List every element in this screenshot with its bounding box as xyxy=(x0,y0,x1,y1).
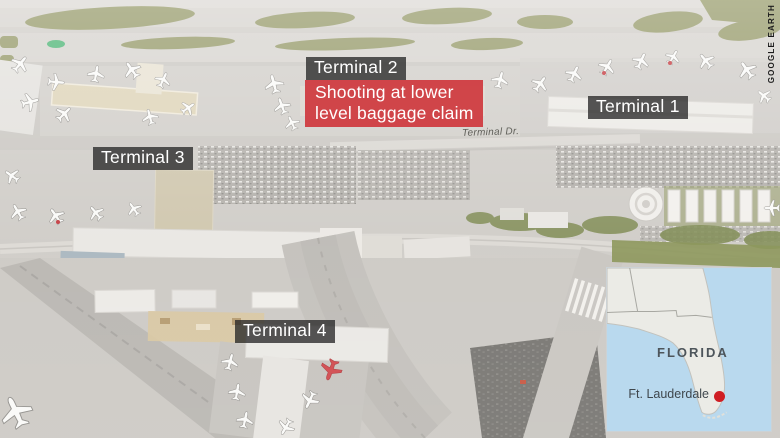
state-label: FLORIDA xyxy=(657,345,729,360)
road-label-terminal-dr: Terminal Dr. xyxy=(462,126,520,139)
city-label: Ft. Lauderdale xyxy=(628,387,709,401)
label-terminal-1: Terminal 1 xyxy=(588,96,688,119)
city-marker-dot xyxy=(714,391,725,402)
label-terminal-2: Terminal 2 xyxy=(306,57,406,80)
alert-banner: Shooting at lower level baggage claim xyxy=(305,80,483,127)
label-terminal-3: Terminal 3 xyxy=(93,147,193,170)
news-map-graphic: Terminal 2 Shooting at lower level bagga… xyxy=(0,0,780,438)
credit-google-earth: GOOGLE EARTH xyxy=(767,4,776,83)
label-terminal-4: Terminal 4 xyxy=(235,320,335,343)
inset-map-florida: FLORIDA Ft. Lauderdale xyxy=(606,267,772,432)
